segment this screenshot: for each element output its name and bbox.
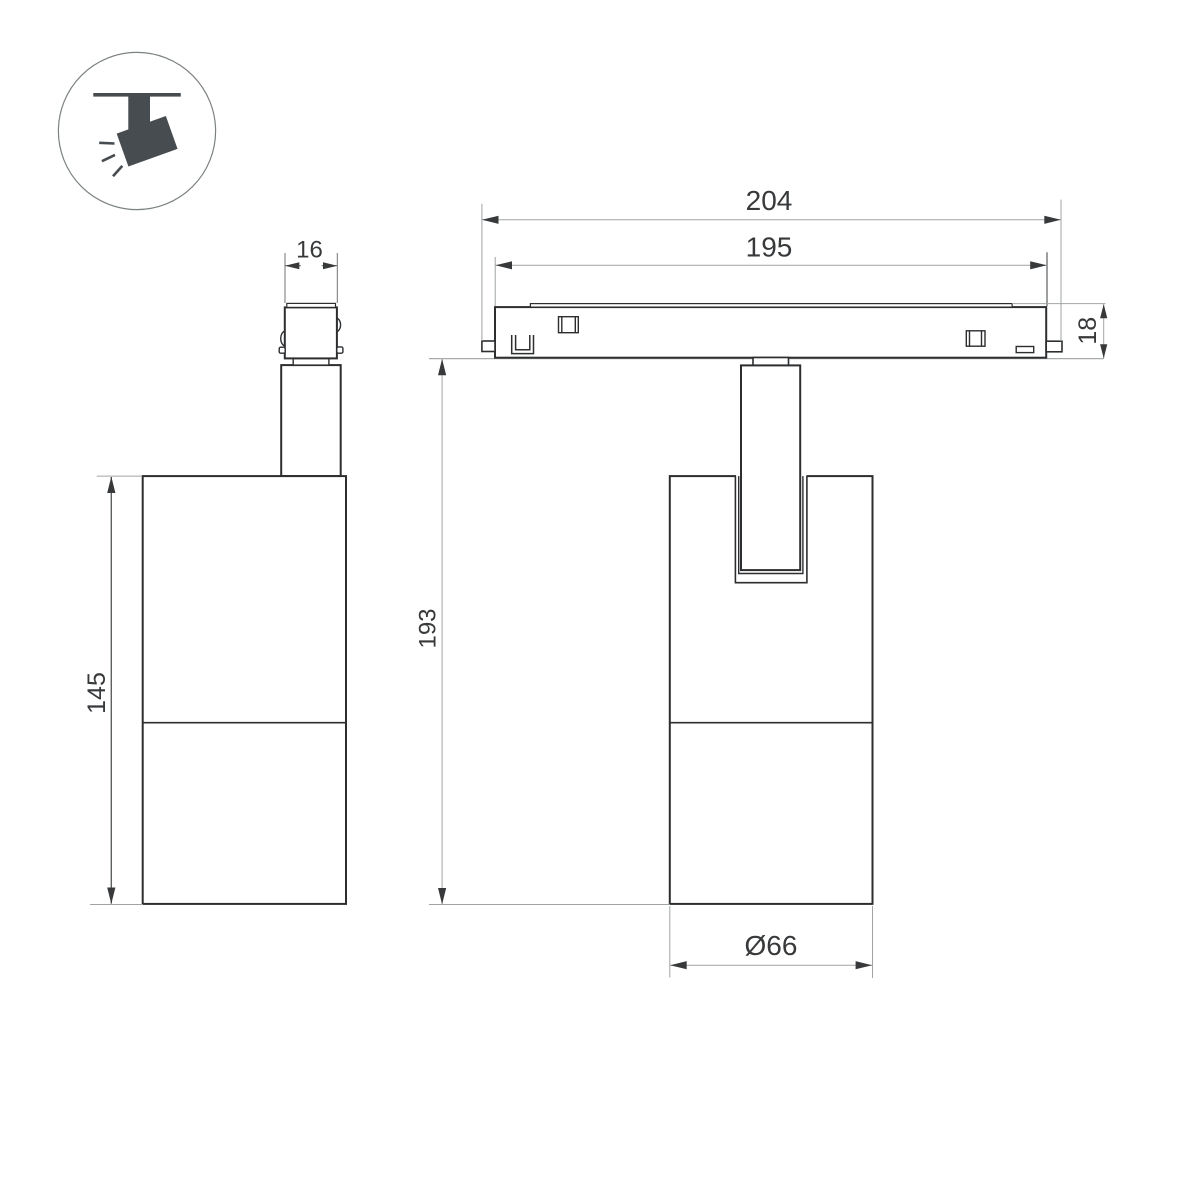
svg-text:Ø66: Ø66	[745, 930, 798, 961]
svg-text:204: 204	[746, 185, 793, 216]
svg-text:145: 145	[83, 672, 111, 714]
svg-text:18: 18	[1074, 317, 1102, 345]
svg-text:193: 193	[415, 608, 442, 648]
svg-text:16: 16	[296, 237, 323, 264]
svg-text:195: 195	[746, 231, 793, 262]
